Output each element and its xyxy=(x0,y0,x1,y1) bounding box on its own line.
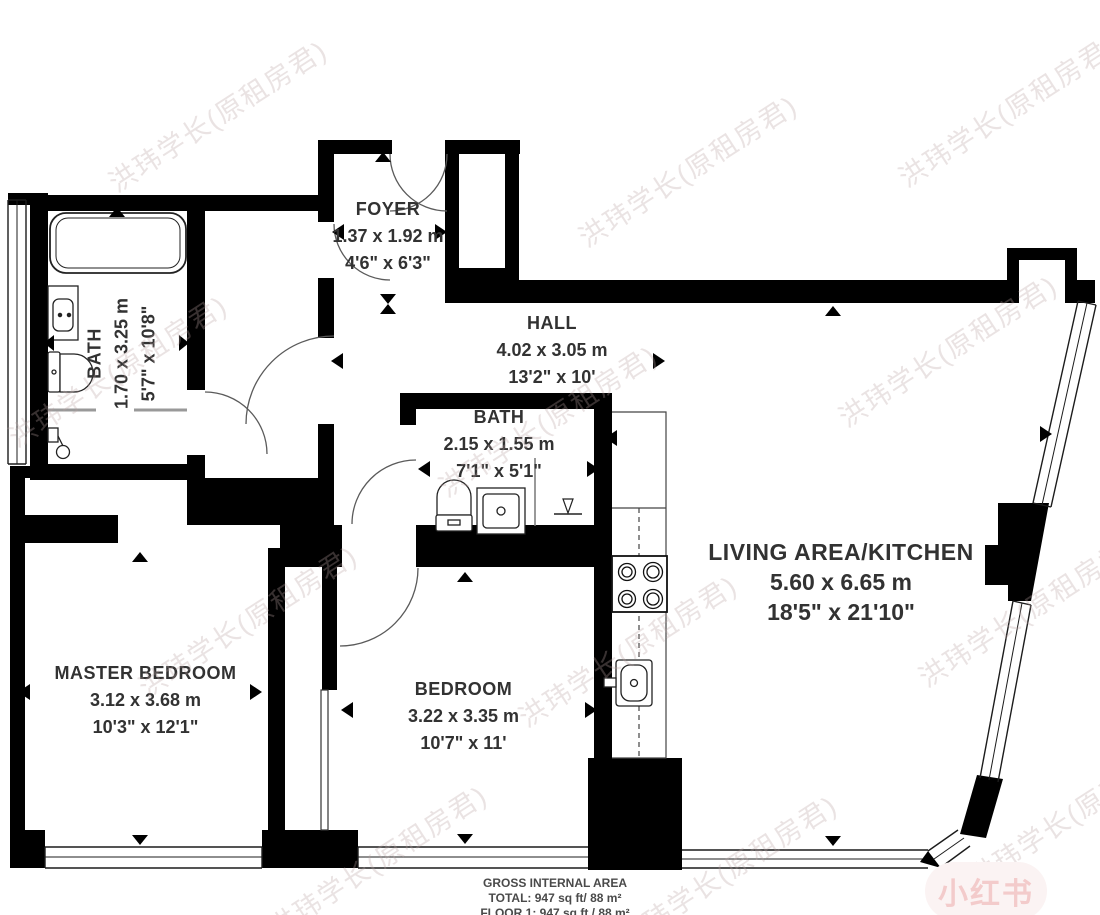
basin-middle-icon xyxy=(477,488,525,534)
arrow-up-icon xyxy=(457,572,473,582)
room-label-foyer: FOYER 1.37 x 1.92 m 4'6" x 6'3" xyxy=(313,196,463,277)
shower-valve-icon xyxy=(554,499,582,514)
floor-plan: FOYER 1.37 x 1.92 m 4'6" x 6'3" HALL 4.0… xyxy=(0,0,1100,915)
master-bedroom-name: MASTER BEDROOM xyxy=(33,660,258,687)
hall-name: HALL xyxy=(447,310,657,337)
arrow-left-icon xyxy=(331,353,343,369)
gia-floor: FLOOR 1: 947 sq ft / 88 m² xyxy=(430,906,680,915)
bath-left-metric: 1.70 x 3.25 m xyxy=(109,269,136,439)
window-bedroom-bottom xyxy=(358,847,588,868)
bedroom-metric: 3.22 x 3.35 m xyxy=(351,703,576,730)
bath-middle-name: BATH xyxy=(413,404,585,431)
bedroom-name: BEDROOM xyxy=(351,676,576,703)
foyer-name: FOYER xyxy=(313,196,463,223)
hall-metric: 4.02 x 3.05 m xyxy=(447,337,657,364)
vanity-sink-icon xyxy=(48,286,78,340)
doorstop-icon xyxy=(380,304,396,314)
room-label-living-kitchen: LIVING AREA/KITCHEN 5.60 x 6.65 m 18'5" … xyxy=(685,537,997,627)
bedroom-door-arc xyxy=(340,568,418,646)
room-label-bedroom: BEDROOM 3.22 x 3.35 m 10'7" x 11' xyxy=(351,676,576,757)
room-label-hall: HALL 4.02 x 3.05 m 13'2" x 10' xyxy=(447,310,657,391)
bedroom-door-leaf xyxy=(321,690,328,830)
arrow-up-icon xyxy=(132,552,148,562)
living-kitchen-name: LIVING AREA/KITCHEN xyxy=(685,537,997,567)
master-bedroom-metric: 3.12 x 3.68 m xyxy=(33,687,258,714)
gross-internal-area: GROSS INTERNAL AREA TOTAL: 947 sq ft/ 88… xyxy=(430,876,680,915)
xiaohongshu-badge: 小红书 xyxy=(925,862,1047,915)
room-label-bath-middle: BATH 2.15 x 1.55 m 7'1" x 5'1" xyxy=(413,404,585,485)
bath-middle-door-arc xyxy=(352,460,416,524)
room-label-bath-left: BATH 1.70 x 3.25 m 5'7" x 10'8" xyxy=(82,269,163,439)
bath-left-door-arc xyxy=(205,392,267,454)
shower-fitting-icon xyxy=(48,428,70,459)
window-left xyxy=(8,200,26,464)
window-diagonal-upper xyxy=(1033,301,1096,507)
bath-left-name: BATH xyxy=(82,269,109,439)
bath-middle-imperial: 7'1" x 5'1" xyxy=(413,458,585,485)
bath-middle-metric: 2.15 x 1.55 m xyxy=(413,431,585,458)
gia-title: GROSS INTERNAL AREA xyxy=(430,876,680,891)
arrow-down-icon xyxy=(457,834,473,844)
foyer-imperial: 4'6" x 6'3" xyxy=(313,250,463,277)
master-bedroom-imperial: 10'3" x 12'1" xyxy=(33,714,258,741)
gia-total: TOTAL: 947 sq ft/ 88 m² xyxy=(430,891,680,906)
hall-imperial: 13'2" x 10' xyxy=(447,364,657,391)
living-kitchen-imperial: 18'5" x 21'10" xyxy=(685,597,997,627)
bedroom-imperial: 10'7" x 11' xyxy=(351,730,576,757)
bathtub-icon xyxy=(50,213,186,273)
window-diagonal-middle xyxy=(980,601,1031,782)
doorstop-icon xyxy=(380,294,396,304)
bath-left-imperial: 5'7" x 10'8" xyxy=(136,269,163,439)
foyer-metric: 1.37 x 1.92 m xyxy=(313,223,463,250)
hall-corridor-door-arc xyxy=(246,336,334,424)
room-label-master-bedroom: MASTER BEDROOM 3.12 x 3.68 m 10'3" x 12'… xyxy=(33,660,258,741)
arrow-up-icon xyxy=(825,306,841,316)
living-kitchen-metric: 5.60 x 6.65 m xyxy=(685,567,997,597)
arrow-down-icon xyxy=(132,835,148,845)
toilet-middle-icon xyxy=(436,480,472,531)
xiaohongshu-logo-text: 小红书 xyxy=(938,869,1034,913)
window-living-bottom xyxy=(682,850,928,868)
arrow-down-icon xyxy=(825,836,841,846)
window-master-bottom xyxy=(45,847,262,868)
stove-icon xyxy=(612,556,667,612)
